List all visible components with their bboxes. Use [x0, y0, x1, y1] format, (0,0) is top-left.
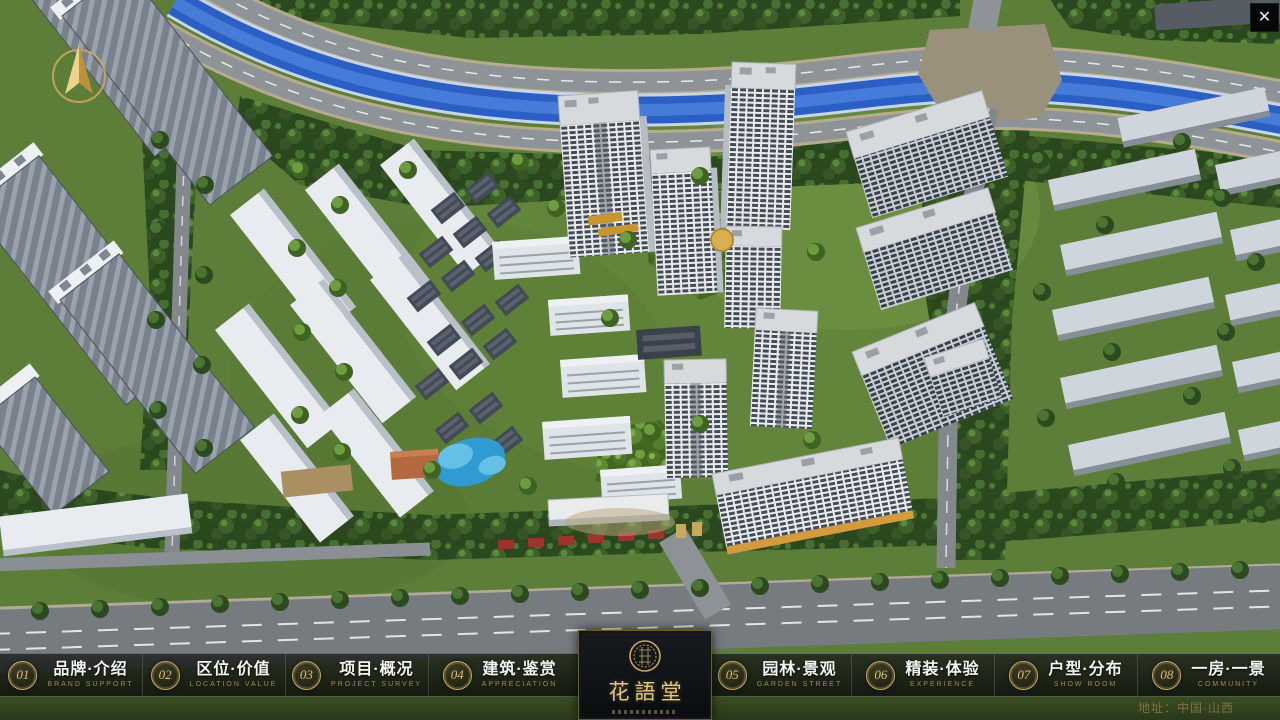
masterplan-3d-view[interactable] [0, 0, 1280, 720]
nav-label: 园林·景观 [762, 662, 836, 678]
nav-label: 品牌·介绍 [53, 662, 127, 678]
nav-item-interior[interactable]: 06 精装·体验EXPERIENCE [851, 654, 994, 696]
nav-label: 户型·分布 [1048, 662, 1122, 678]
brand-seal-icon [627, 638, 663, 674]
nav-badge-06: 06 [866, 661, 895, 690]
nav-caption: APPRECIATION [482, 681, 558, 688]
close-button[interactable]: ✕ [1250, 3, 1279, 32]
nav-badge-04: 04 [443, 661, 472, 690]
close-icon: ✕ [1258, 10, 1271, 26]
nav-caption: LOCATION VALUE [190, 681, 278, 688]
nav-badge-07: 07 [1009, 661, 1038, 690]
nav-label: 一房·一景 [1191, 662, 1265, 678]
nav-badge-08: 08 [1152, 661, 1181, 690]
nav-badge-05: 05 [718, 661, 747, 690]
nav-item-garden[interactable]: 05 园林·景观GARDEN STREET [709, 654, 851, 696]
nav-badge-03: 03 [292, 661, 321, 690]
logo-panel[interactable]: 花語堂 [578, 630, 712, 720]
project-address: 地址：中国·山西 [1138, 699, 1234, 716]
nav-caption: PROJECT SURVEY [331, 681, 422, 688]
nav-badge-02: 02 [151, 661, 180, 690]
clubhouse [636, 326, 702, 360]
nav-caption: BRAND SUPPORT [47, 681, 133, 688]
nav-label: 项目·概况 [339, 662, 413, 678]
brand-caption [612, 710, 678, 714]
nav-caption: GARDEN STREET [757, 681, 843, 688]
nav-caption: EXPERIENCE [910, 681, 975, 688]
nav-label: 精装·体验 [905, 662, 979, 678]
sales-presentation-app: ✕ 地址：中国·山西 01 品牌·介绍BRAND SUPPORT 02 区位·价… [0, 0, 1280, 720]
nav-caption: SHOW ROOM [1054, 681, 1118, 688]
nav-item-location[interactable]: 02 区位·价值LOCATION VALUE [142, 654, 285, 696]
nav-item-views[interactable]: 08 一房·一景COMMUNITY [1137, 654, 1280, 696]
nav-label: 建筑·鉴赏 [482, 662, 556, 678]
nav-item-brand[interactable]: 01 品牌·介绍BRAND SUPPORT [0, 654, 142, 696]
brand-name: 花語堂 [604, 676, 687, 706]
nav-badge-01: 01 [8, 661, 37, 690]
nav-item-floorplans[interactable]: 07 户型·分布SHOW ROOM [994, 654, 1137, 696]
nav-caption: COMMUNITY [1198, 681, 1259, 688]
nav-label: 区位·价值 [196, 662, 270, 678]
nav-item-architecture[interactable]: 04 建筑·鉴赏APPRECIATION [428, 654, 571, 696]
nav-item-project[interactable]: 03 项目·概况PROJECT SURVEY [285, 654, 428, 696]
